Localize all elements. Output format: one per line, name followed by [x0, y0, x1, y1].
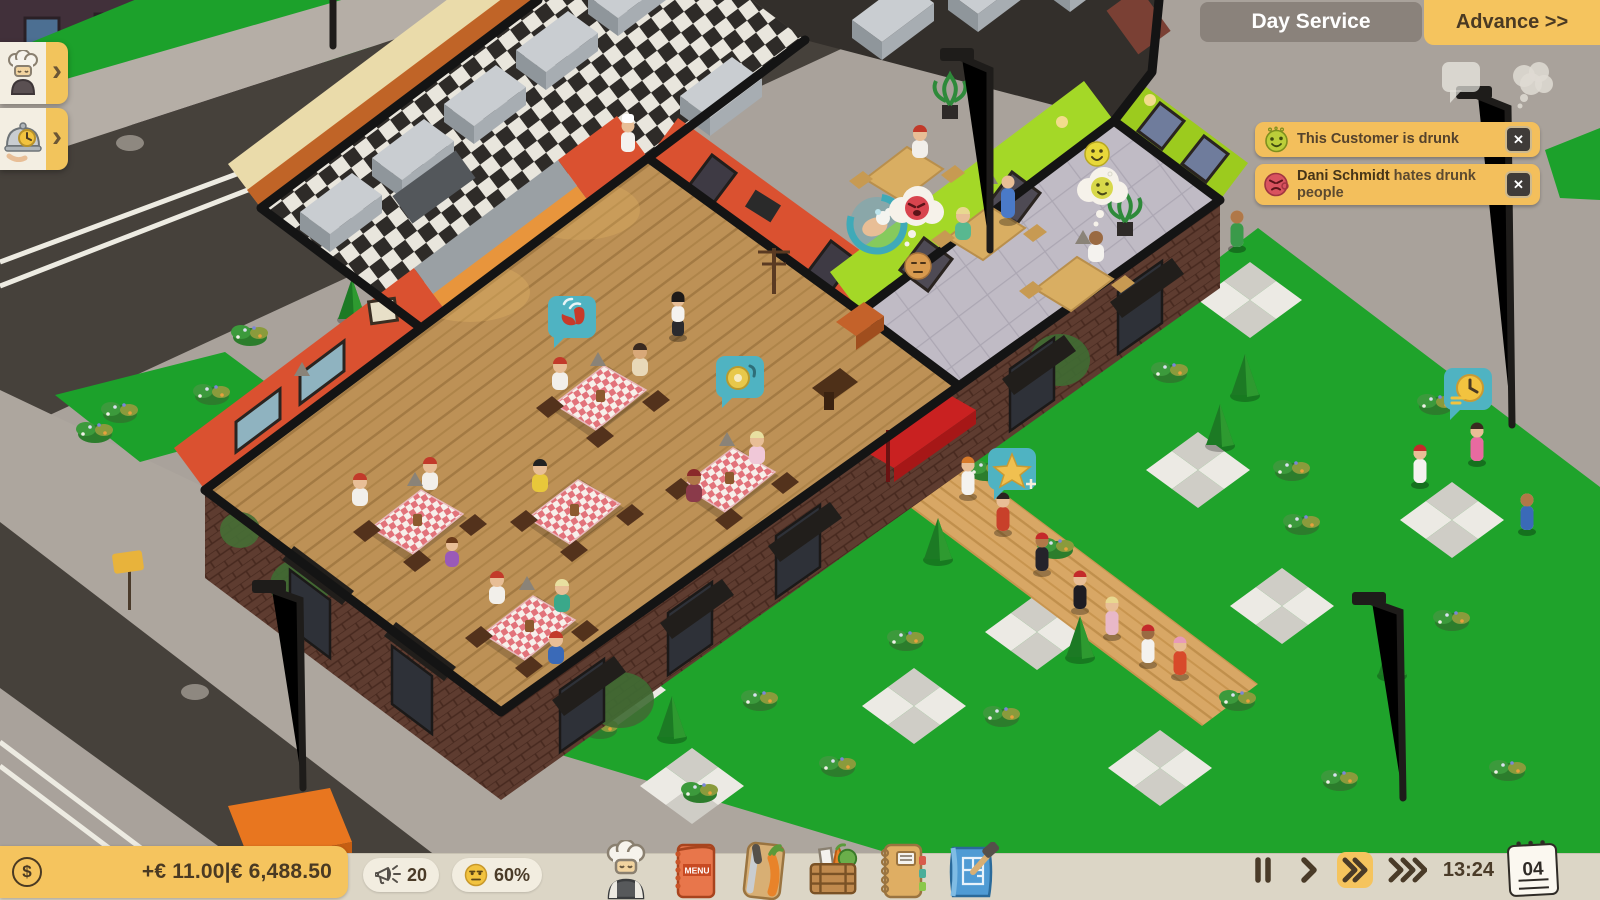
- satisfaction-value: 60%: [494, 865, 530, 886]
- chef-icon: [599, 840, 653, 900]
- time-controls: 13:24 04: [1245, 844, 1558, 896]
- annoyed-face[interactable]: [905, 253, 931, 279]
- staff-tool-button[interactable]: [598, 836, 654, 900]
- clock-time: 13:24: [1443, 859, 1494, 882]
- megaphone-icon: [375, 864, 401, 886]
- phase-label: Day Service: [1200, 2, 1422, 42]
- orders-panel-button[interactable]: ›: [0, 108, 68, 170]
- toolbar: MENU: [598, 836, 999, 900]
- chef-icon: [0, 42, 46, 104]
- customer-name: Dani Schmidt: [1297, 168, 1390, 184]
- marketing-stat: 20: [363, 858, 439, 892]
- cutting-board-icon: [736, 840, 792, 900]
- currency-icon: $: [12, 857, 42, 887]
- advance-button[interactable]: Advance >>: [1424, 0, 1600, 45]
- cloche-clock-icon: [0, 108, 46, 170]
- notification-drunk-customer[interactable]: This Customer is drunk ✕: [1255, 122, 1540, 157]
- notification-stack: This Customer is drunk ✕ Dani Schmidt ha…: [1255, 122, 1540, 205]
- chevron-right-icon[interactable]: ›: [46, 42, 68, 104]
- build-tool-button[interactable]: [943, 836, 999, 900]
- supply-crate-icon: [805, 842, 861, 900]
- angry-face-icon: [1263, 171, 1290, 198]
- calendar-lines: [1518, 878, 1548, 890]
- menu-book-icon: MENU: [670, 842, 720, 900]
- notification-hates-drunk[interactable]: Dani Schmidt hates drunk people ✕: [1255, 164, 1540, 205]
- menu-label: MENU: [684, 866, 709, 876]
- fast-forward-button[interactable]: [1337, 852, 1373, 888]
- play-button[interactable]: [1291, 852, 1327, 888]
- staff-panel-button[interactable]: ›: [0, 42, 68, 104]
- satisfaction-stat: 60%: [452, 858, 542, 892]
- menu-tool-button[interactable]: MENU: [667, 836, 723, 900]
- chat-indicators: [1438, 58, 1558, 110]
- journal-icon: [875, 842, 929, 900]
- pause-button[interactable]: [1245, 852, 1281, 888]
- fastest-forward-button[interactable]: [1383, 852, 1431, 888]
- money-display: $ +€ 11.00|€ 6,488.50: [0, 846, 348, 898]
- marketing-value: 20: [407, 865, 427, 886]
- journal-tool-button[interactable]: [874, 836, 930, 900]
- happy-face[interactable]: [1085, 142, 1109, 166]
- game-screen: { "hud": { "phase_label": "Day Service",…: [0, 0, 1600, 900]
- notification-text: Dani Schmidt hates drunk people: [1297, 168, 1498, 201]
- chevron-right-icon[interactable]: ›: [46, 108, 68, 170]
- blueprint-icon: [943, 842, 999, 900]
- money-amounts: +€ 11.00|€ 6,488.50: [42, 860, 348, 884]
- drunk-face-icon: [1263, 126, 1290, 153]
- neutral-face-icon: [464, 863, 488, 887]
- recipes-tool-button[interactable]: [736, 836, 792, 900]
- money-total: € 6,488.50: [231, 860, 332, 883]
- chef: [621, 114, 635, 152]
- stock-tool-button[interactable]: [805, 836, 861, 900]
- close-icon[interactable]: ✕: [1505, 126, 1532, 153]
- notification-text: This Customer is drunk: [1297, 131, 1498, 148]
- day-calendar: 04: [1507, 843, 1560, 898]
- thought-bubble-icon: [1506, 58, 1558, 110]
- money-delta: +€ 11.00: [142, 860, 225, 883]
- speech-bubble-icon: [1438, 58, 1484, 104]
- close-icon[interactable]: ✕: [1505, 171, 1532, 198]
